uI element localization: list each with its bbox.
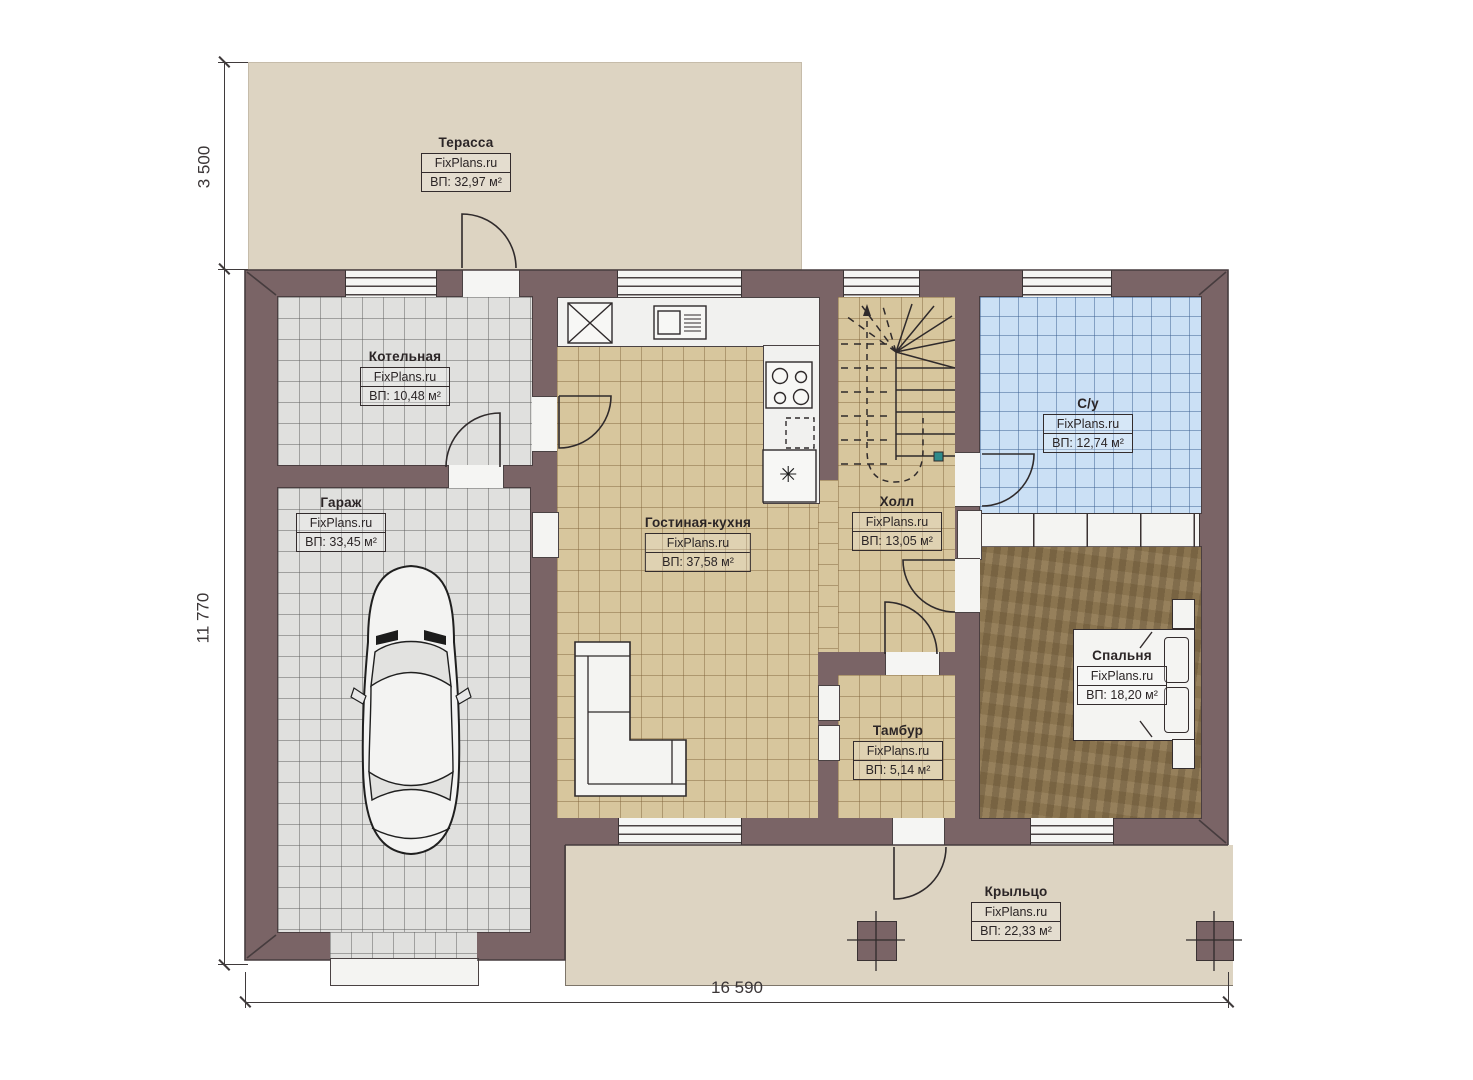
room-area: ВП: 13,05 м² [853,532,941,550]
room-label-hall: Холл FixPlans.ru ВП: 13,05 м² [852,494,942,551]
brand-watermark: FixPlans.ru [422,154,510,173]
brand-watermark: FixPlans.ru [1078,667,1166,686]
radiator [818,725,840,761]
room-area: ВП: 12,74 м² [1044,434,1132,452]
radiator [818,685,840,721]
window-bedroom [1030,818,1114,845]
door-terrace-opening [462,270,520,297]
room-name: Котельная [360,349,450,364]
room-label-bathroom: С/у FixPlans.ru ВП: 12,74 м² [1043,396,1133,453]
dim-extension [218,62,248,63]
room-name: Тамбур [853,723,943,738]
door-boiler-garage-opening [448,465,504,488]
wardrobe-row [980,513,1200,549]
room-name: Гостиная-кухня [645,515,751,530]
brand-watermark: FixPlans.ru [853,513,941,532]
room-area: ВП: 32,97 м² [422,173,510,191]
pillow [1164,687,1189,733]
door-bathroom-opening [955,452,980,507]
room-label-vestibule: Тамбур FixPlans.ru ВП: 5,14 м² [853,723,943,780]
room-label-garage: Гараж FixPlans.ru ВП: 33,45 м² [296,495,386,552]
room-name: Холл [852,494,942,509]
fridge-snowflake-icon: ✳ [779,462,797,488]
window-stairs [843,270,920,297]
room-info-box: FixPlans.ru ВП: 32,97 м² [421,153,511,192]
brand-watermark: FixPlans.ru [972,903,1060,922]
room-label-boiler: Котельная FixPlans.ru ВП: 10,48 м² [360,349,450,406]
nightstand [1172,599,1195,629]
room-info-box: FixPlans.ru ВП: 10,48 м² [360,367,450,406]
window-kitchen [617,270,742,297]
room-area: ВП: 33,45 м² [297,533,385,551]
brand-watermark: FixPlans.ru [646,534,750,553]
room-info-box: FixPlans.ru ВП: 12,74 м² [1043,414,1133,453]
room-area: ВП: 22,33 м² [972,922,1060,940]
door-bedroom-opening [955,558,980,613]
room-name: Гараж [296,495,386,510]
room-info-box: FixPlans.ru ВП: 33,45 м² [296,513,386,552]
room-name: Спальня [1077,648,1167,663]
dim-label-terrace-height: 3 500 [194,146,214,189]
door-hall-vestibule-opening [885,652,940,675]
floor-garage [278,488,530,932]
floor-passage [818,480,838,652]
room-area: ВП: 18,20 м² [1078,686,1166,704]
radiator [957,510,982,560]
window-boiler [345,270,437,297]
room-label-bedroom: Спальня FixPlans.ru ВП: 18,20 м² [1077,648,1167,705]
room-area: ВП: 10,48 м² [361,387,449,405]
room-area: ВП: 37,58 м² [646,553,750,571]
porch-column [1196,921,1234,961]
dim-line-house-width [245,1002,1228,1003]
garage-door-panel [330,958,479,986]
dim-label-house-width: 16 590 [711,978,763,998]
room-area: ВП: 5,14 м² [854,761,942,779]
brand-watermark: FixPlans.ru [297,514,385,533]
room-info-box: FixPlans.ru ВП: 5,14 м² [853,741,943,780]
room-info-box: FixPlans.ru ВП: 37,58 м² [645,533,751,572]
floor-hall [838,297,955,652]
room-info-box: FixPlans.ru ВП: 18,20 м² [1077,666,1167,705]
brand-watermark: FixPlans.ru [1044,415,1132,434]
kitchen-counter-top [557,297,820,347]
door-boiler-kitchen-opening [532,396,557,452]
dim-label-house-height: 11 770 [193,593,213,644]
room-info-box: FixPlans.ru ВП: 22,33 м² [971,902,1061,941]
pillow [1164,637,1189,683]
porch-area [565,845,1233,986]
porch-column [857,921,897,961]
terrace-area [248,62,802,270]
wall-niche [532,512,559,558]
room-name: Крыльцо [971,884,1061,899]
room-name: Терасса [421,135,511,150]
garage-apron [330,932,477,958]
floor-plan-canvas: ✳ [0,0,1473,1080]
dim-line-terrace-height [224,62,225,268]
entry-door-opening [892,818,945,845]
brand-watermark: FixPlans.ru [854,742,942,761]
room-label-terrace: Терасса FixPlans.ru ВП: 32,97 м² [421,135,511,192]
window-living [618,818,742,845]
room-name: С/у [1043,396,1133,411]
brand-watermark: FixPlans.ru [361,368,449,387]
nightstand [1172,739,1195,769]
room-label-porch: Крыльцо FixPlans.ru ВП: 22,33 м² [971,884,1061,941]
window-bathroom [1022,270,1112,297]
dim-extension [218,269,248,270]
room-label-living-kitchen: Гостиная-кухня FixPlans.ru ВП: 37,58 м² [645,515,751,572]
dim-line-house-height [224,270,225,965]
room-info-box: FixPlans.ru ВП: 13,05 м² [852,512,942,551]
